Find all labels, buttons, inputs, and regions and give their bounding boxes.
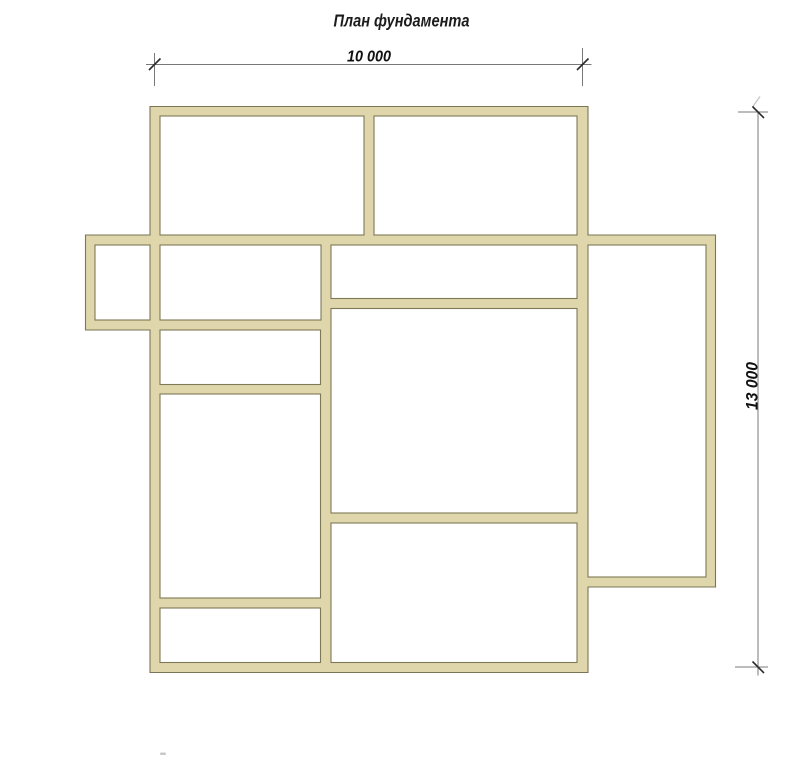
svg-text:10 000: 10 000	[347, 49, 391, 66]
svg-text:13 000: 13 000	[743, 362, 762, 410]
svg-text:План фундамента: План фундамента	[334, 11, 470, 31]
